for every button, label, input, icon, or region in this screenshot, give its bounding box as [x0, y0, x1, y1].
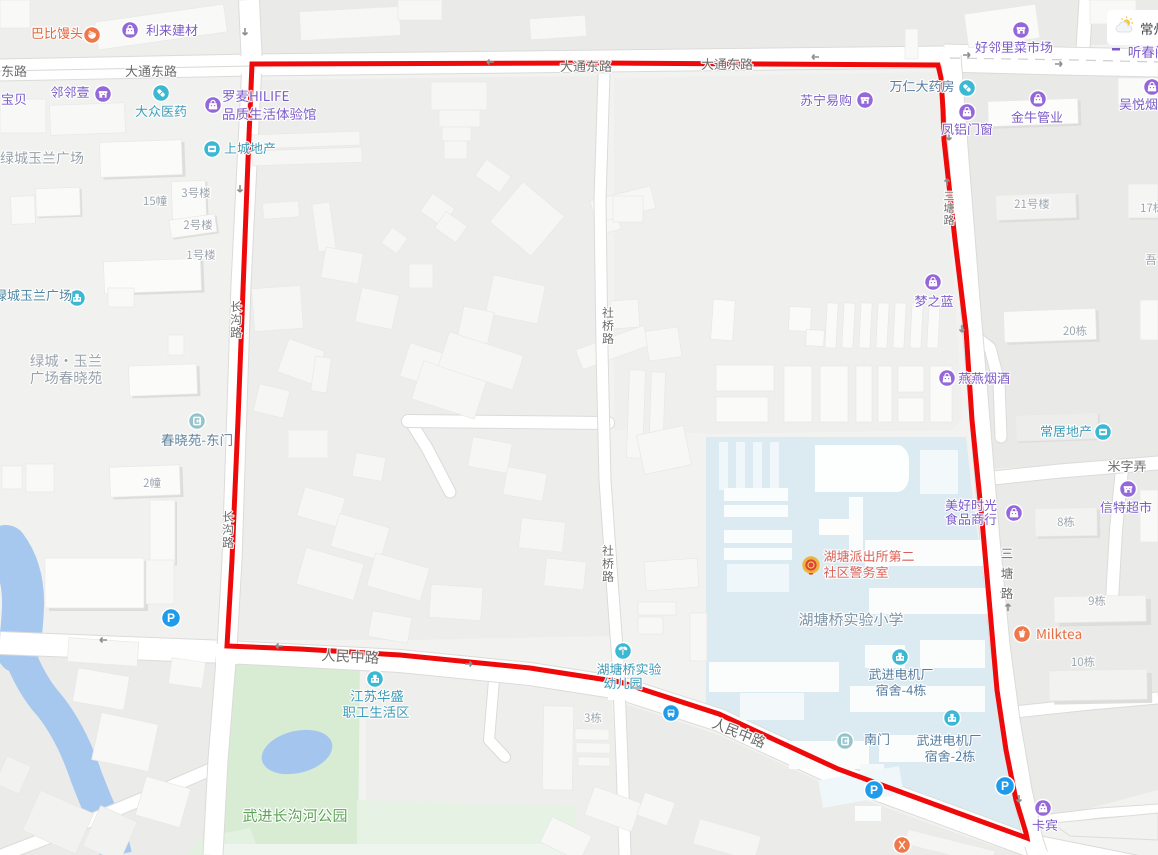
svg-text:P: P — [1001, 779, 1009, 793]
svg-text:P: P — [167, 611, 175, 625]
svg-text:P: P — [870, 783, 878, 797]
